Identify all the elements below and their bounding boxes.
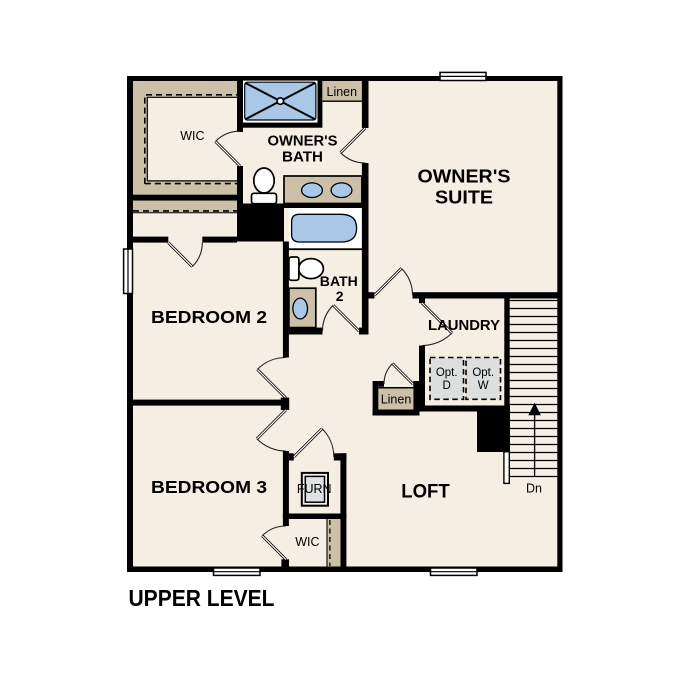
svg-text:2: 2 (336, 288, 344, 304)
svg-text:Opt.: Opt. (436, 367, 458, 379)
svg-text:LOFT: LOFT (401, 482, 450, 503)
svg-text:D: D (443, 380, 451, 392)
svg-text:Opt.: Opt. (472, 367, 494, 379)
svg-text:BEDROOM 2: BEDROOM 2 (151, 307, 267, 327)
svg-text:WIC: WIC (180, 129, 204, 143)
svg-text:Linen: Linen (327, 85, 358, 99)
svg-text:FURN: FURN (297, 482, 332, 496)
svg-text:W: W (478, 380, 489, 392)
svg-text:Linen: Linen (381, 393, 412, 407)
svg-text:Dn: Dn (526, 482, 542, 496)
svg-text:SUITE: SUITE (435, 187, 493, 208)
svg-text:OWNER'S: OWNER'S (418, 166, 511, 187)
svg-text:UPPER LEVEL: UPPER LEVEL (129, 585, 275, 611)
svg-text:OWNER'S: OWNER'S (268, 134, 338, 150)
svg-text:LAUNDRY: LAUNDRY (428, 318, 500, 334)
svg-text:WIC: WIC (295, 535, 319, 549)
svg-text:BATH: BATH (320, 273, 358, 289)
svg-text:BATH: BATH (282, 150, 323, 166)
svg-text:BEDROOM 3: BEDROOM 3 (151, 477, 267, 497)
